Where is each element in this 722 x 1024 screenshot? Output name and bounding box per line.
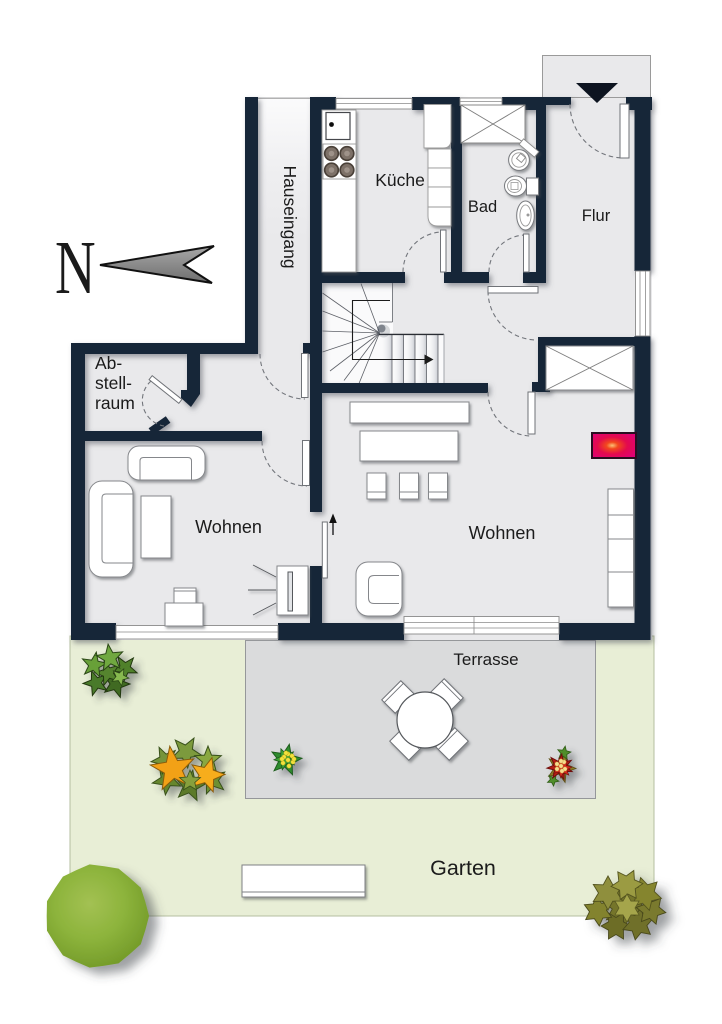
svg-text:Bad: Bad bbox=[468, 198, 497, 216]
svg-text:Wohnen: Wohnen bbox=[469, 523, 536, 543]
svg-text:stell-: stell- bbox=[95, 373, 132, 393]
svg-text:Flur: Flur bbox=[582, 207, 611, 225]
svg-text:Ab-: Ab- bbox=[95, 353, 122, 373]
svg-text:Küche: Küche bbox=[375, 170, 425, 190]
svg-text:raum: raum bbox=[95, 393, 135, 413]
svg-text:Wohnen: Wohnen bbox=[195, 517, 262, 537]
svg-text:Hauseingang: Hauseingang bbox=[280, 165, 300, 268]
svg-text:Terrasse: Terrasse bbox=[453, 650, 518, 669]
svg-text:N: N bbox=[55, 226, 96, 310]
svg-text:Garten: Garten bbox=[430, 856, 496, 880]
